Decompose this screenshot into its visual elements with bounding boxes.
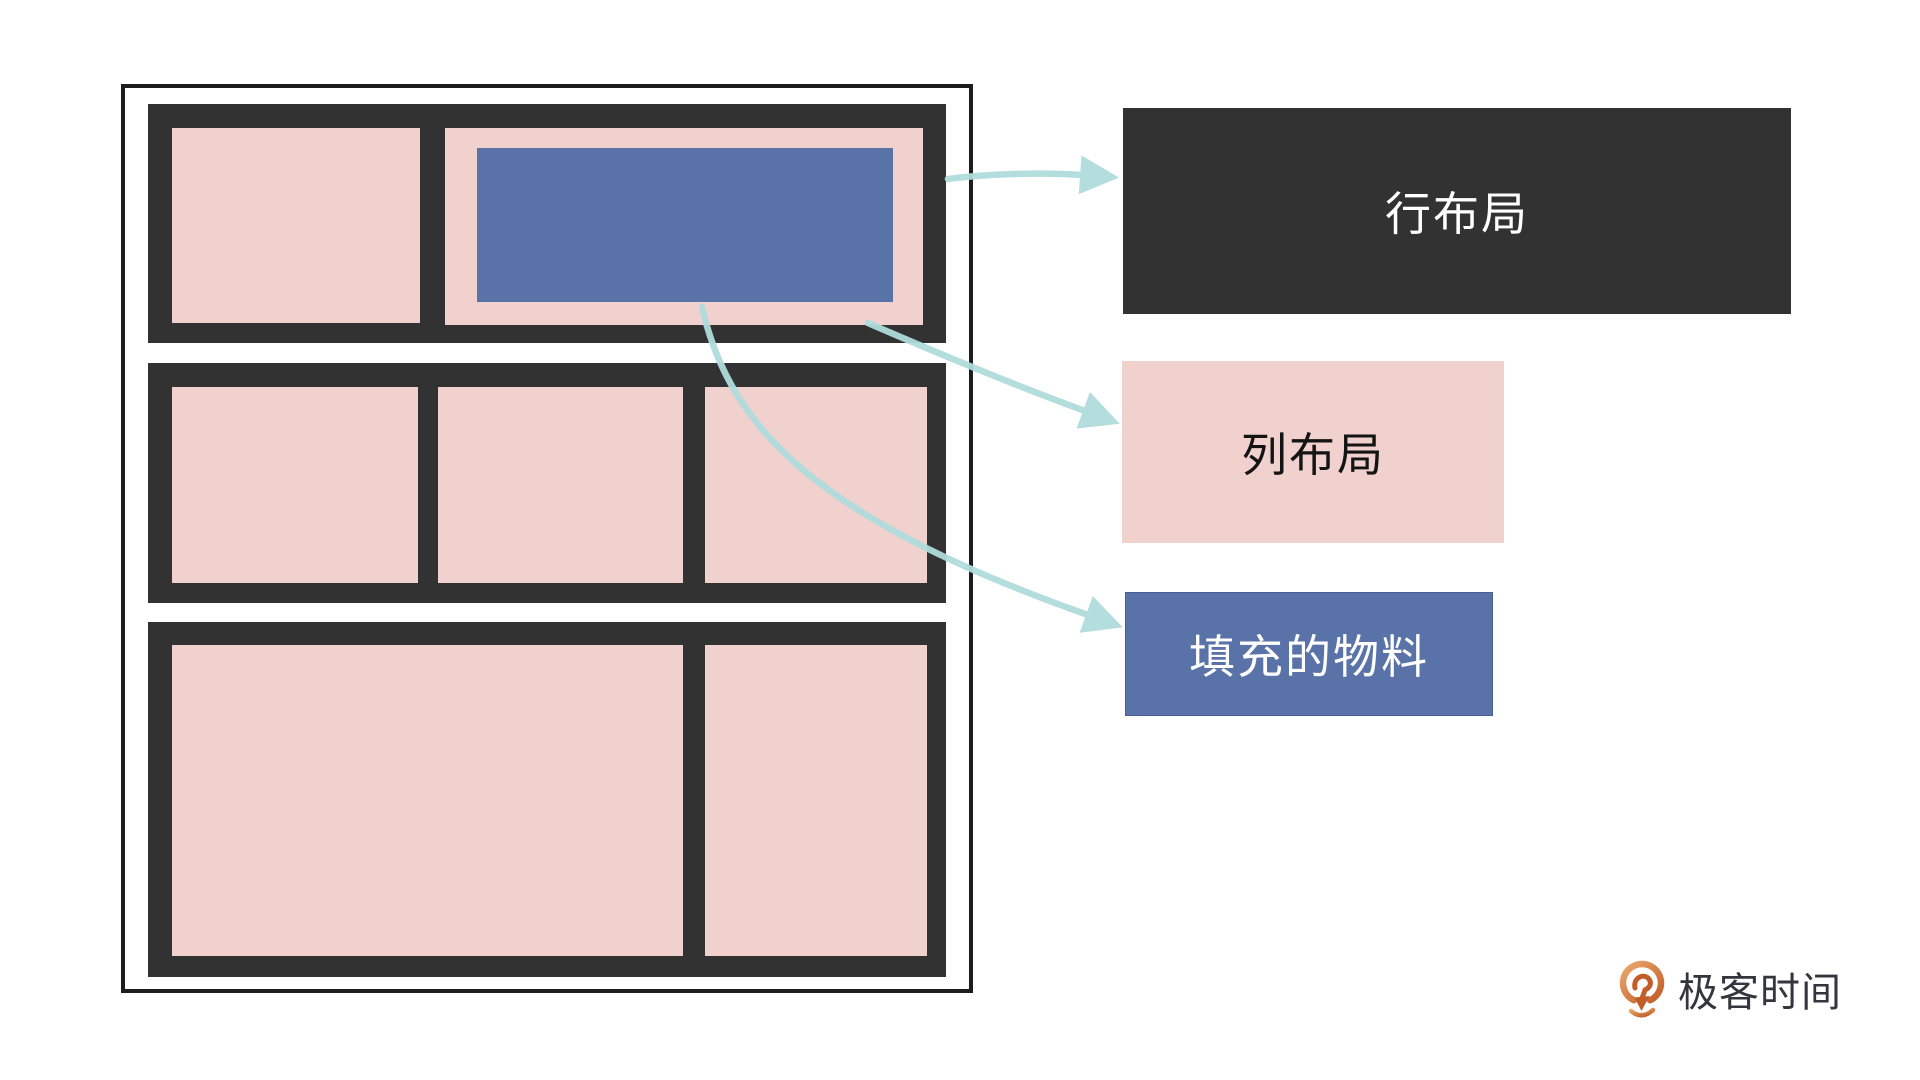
layout-cell [705, 387, 927, 583]
layout-cell [438, 387, 683, 583]
legend-row-layout: 行布局 [1123, 108, 1791, 314]
legend-column-layout: 列布局 [1122, 361, 1504, 543]
legend-column-layout-label: 列布局 [1241, 419, 1385, 485]
layout-cell [172, 128, 420, 323]
layout-cell [172, 387, 418, 583]
brand-logo: 极客时间 [1618, 956, 1842, 1022]
geektime-logo-icon [1618, 959, 1666, 1019]
page-canvas: 行布局 列布局 填充的物料 极客时间 [0, 0, 1920, 1080]
legend-row-layout-label: 行布局 [1385, 178, 1529, 244]
layout-row-2 [148, 363, 946, 603]
layout-row-1 [148, 104, 946, 343]
layout-cell [445, 128, 923, 325]
layout-cell [172, 645, 683, 956]
brand-name: 极客时间 [1678, 960, 1842, 1018]
legend-fill-material: 填充的物料 [1125, 592, 1493, 716]
layout-cell [705, 645, 927, 956]
layout-row-3 [148, 622, 946, 977]
fill-material-block [477, 148, 893, 302]
layout-frame [121, 84, 973, 993]
legend-fill-material-label: 填充的物料 [1189, 621, 1429, 687]
